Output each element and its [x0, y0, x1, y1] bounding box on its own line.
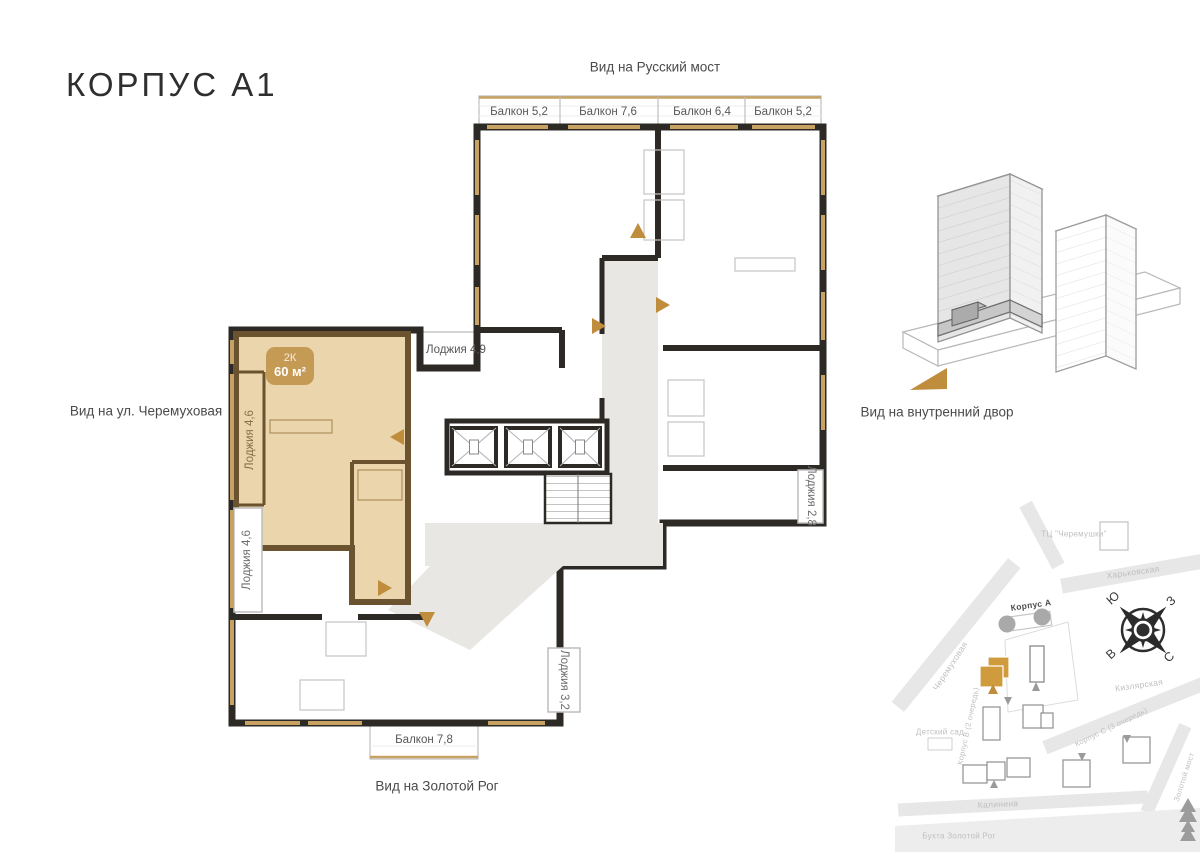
- stairs: [545, 474, 611, 523]
- view-direction-arrow: [910, 368, 947, 390]
- streets: [892, 501, 1200, 852]
- balcony-bottom: [370, 723, 478, 759]
- elevators: [447, 421, 607, 473]
- korpus-a-buildings: [980, 657, 1009, 694]
- loggia-28-box: [798, 470, 823, 523]
- building-3d: [903, 174, 1180, 390]
- apartment-area: 60 м²: [274, 365, 306, 380]
- tower-a1: [938, 174, 1042, 342]
- floor-plan: [232, 96, 823, 759]
- kindergarten-building: [928, 738, 952, 750]
- bay-water: [895, 808, 1200, 852]
- balcony-strip-top: [479, 96, 821, 127]
- loggia-32-box: [548, 648, 580, 712]
- apartment-type: 2К: [284, 352, 297, 365]
- plan-graphics: [0, 0, 1200, 852]
- tower-neighbor: [1056, 215, 1136, 372]
- page: КОРПУС А1 Вид на Русский мост Вид на ул.…: [0, 0, 1200, 852]
- compass-rose: [1115, 602, 1170, 657]
- map-poi-icon: [999, 616, 1016, 633]
- apartment-badge[interactable]: 2К 60 м²: [266, 347, 314, 385]
- site-map: [892, 501, 1200, 852]
- map-building: [1030, 646, 1044, 682]
- map-poi-icon: [1034, 609, 1051, 626]
- loggia-46-box: [234, 508, 262, 612]
- mall-building: [1100, 522, 1128, 550]
